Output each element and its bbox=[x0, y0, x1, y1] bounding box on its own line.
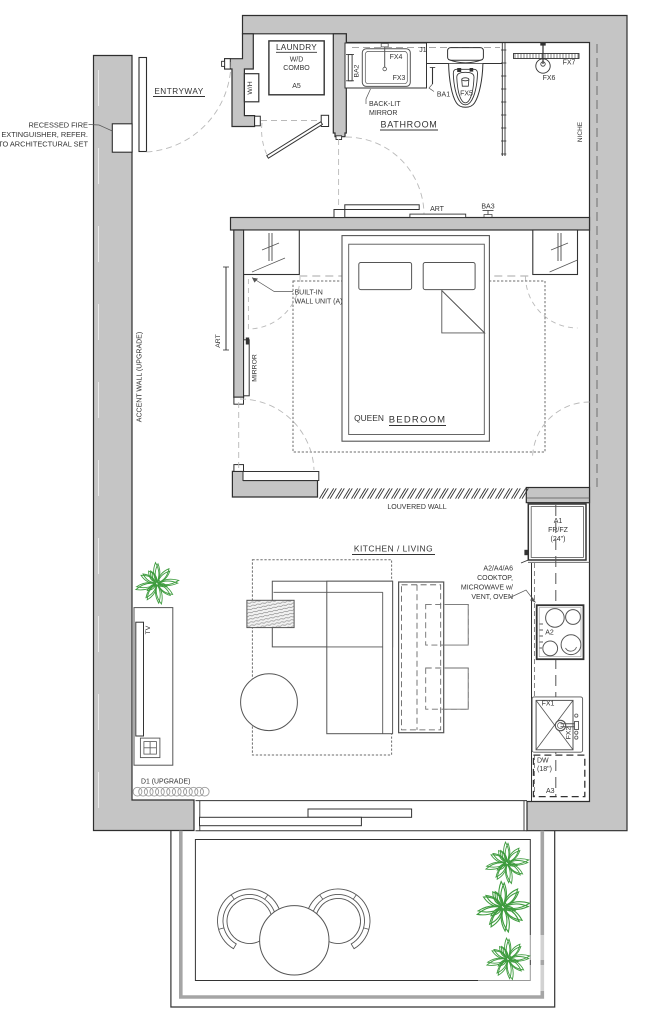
svg-text:WALL UNIT (A): WALL UNIT (A) bbox=[295, 299, 343, 306]
svg-text:MICROWAVE w/: MICROWAVE w/ bbox=[461, 585, 513, 592]
svg-text:COOKTOP,: COOKTOP, bbox=[477, 575, 513, 582]
svg-text:VENT, OVEN: VENT, OVEN bbox=[471, 594, 513, 601]
svg-text:ART: ART bbox=[430, 206, 445, 213]
svg-text:(24"): (24") bbox=[551, 536, 566, 543]
svg-text:TO ARCHITECTURAL SET: TO ARCHITECTURAL SET bbox=[0, 139, 88, 148]
svg-text:FX7: FX7 bbox=[563, 60, 576, 67]
svg-text:BATHROOM: BATHROOM bbox=[381, 120, 438, 130]
svg-text:MIRROR: MIRROR bbox=[252, 354, 259, 382]
svg-text:EXTINGUISHER, REFER.: EXTINGUISHER, REFER. bbox=[1, 130, 88, 139]
svg-text:FX2: FX2 bbox=[566, 727, 573, 740]
svg-text:A5: A5 bbox=[292, 83, 301, 90]
svg-text:FR/FZ: FR/FZ bbox=[548, 527, 569, 534]
svg-text:KITCHEN / LIVING: KITCHEN / LIVING bbox=[354, 544, 433, 554]
svg-text:RECESSED FIRE: RECESSED FIRE bbox=[28, 120, 88, 129]
svg-text:A1: A1 bbox=[554, 518, 563, 525]
svg-text:FX3: FX3 bbox=[393, 75, 406, 82]
svg-text:W/H: W/H bbox=[247, 81, 254, 94]
svg-text:DW: DW bbox=[537, 758, 549, 765]
svg-text:ACCENT WALL (UPGRADE): ACCENT WALL (UPGRADE) bbox=[137, 332, 144, 422]
svg-text:(18"): (18") bbox=[537, 766, 552, 773]
svg-text:A3: A3 bbox=[546, 788, 555, 795]
svg-text:D1 (UPGRADE): D1 (UPGRADE) bbox=[141, 779, 190, 786]
svg-text:BEDROOM: BEDROOM bbox=[389, 415, 447, 426]
svg-text:W/D: W/D bbox=[290, 57, 304, 64]
svg-text:J1: J1 bbox=[419, 47, 427, 54]
svg-text:A2/A4/A6: A2/A4/A6 bbox=[483, 566, 513, 573]
svg-text:FX6: FX6 bbox=[543, 75, 556, 82]
svg-text:BA2: BA2 bbox=[354, 64, 361, 77]
svg-text:TV: TV bbox=[145, 625, 152, 634]
svg-text:A2: A2 bbox=[545, 630, 554, 637]
svg-text:LAUNDRY: LAUNDRY bbox=[276, 43, 317, 52]
svg-text:NICHE: NICHE bbox=[577, 121, 584, 142]
svg-text:COMBO: COMBO bbox=[283, 65, 310, 72]
svg-text:ART: ART bbox=[215, 334, 222, 347]
svg-text:QUEEN: QUEEN bbox=[354, 413, 384, 423]
svg-text:FX5: FX5 bbox=[460, 91, 473, 98]
svg-text:BUILT-IN: BUILT-IN bbox=[295, 290, 323, 297]
svg-text:FX4: FX4 bbox=[390, 54, 403, 61]
svg-text:LOUVERED WALL: LOUVERED WALL bbox=[387, 504, 446, 511]
svg-text:BA3: BA3 bbox=[481, 204, 494, 211]
svg-text:MIRROR: MIRROR bbox=[369, 110, 397, 117]
svg-text:BACK-LIT: BACK-LIT bbox=[369, 101, 401, 108]
svg-text:BA1: BA1 bbox=[437, 92, 450, 99]
svg-text:FX1: FX1 bbox=[542, 701, 555, 708]
svg-text:ENTRYWAY: ENTRYWAY bbox=[154, 87, 203, 96]
